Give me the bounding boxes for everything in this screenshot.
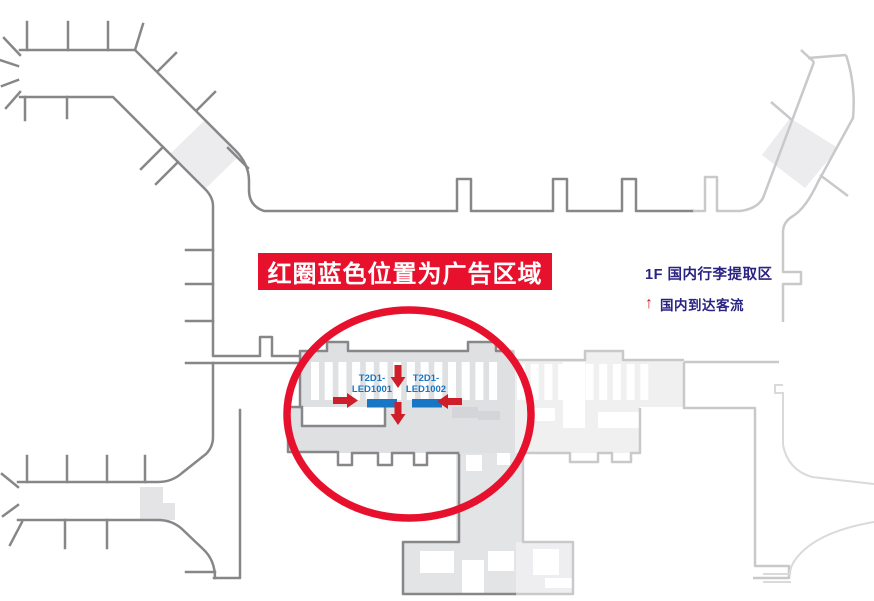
ad-spot-label-led1002: T2D1- LED1002 (404, 373, 448, 395)
wall-left-lower (18, 363, 213, 482)
shaded-band-topright (762, 118, 838, 188)
ad-spot-label-led1001: T2D1- LED1001 (350, 373, 394, 395)
shaded-band-topleft (171, 119, 241, 188)
concourse-topright-tip (801, 50, 846, 62)
walls-dark (0, 22, 693, 594)
gate-ticks-left-wall (186, 250, 213, 321)
legend-flow-row: ↑ 国内到达客流 (645, 294, 744, 314)
concourse-bottomleft-lower (18, 520, 215, 578)
walls-faint (763, 385, 874, 582)
gate-ticks-west-end (0, 38, 20, 108)
concourse-topright-outer (783, 55, 854, 322)
ad-marker-led1001[interactable] (367, 399, 397, 408)
up-arrow-icon: ↑ (645, 296, 653, 312)
room-notch-outline (302, 407, 385, 426)
ad-spot-label-line2: LED1002 (406, 384, 446, 395)
gate-ticks-bl-west (2, 474, 18, 516)
ad-spot-label-line2: LED1001 (352, 384, 392, 395)
ad-spot-label-line1: T2D1- (359, 373, 385, 384)
ad-spot-label-line1: T2D1- (413, 373, 439, 384)
terminal-floorplan: 红圈蓝色位置为广告区域 1F 国内行李提取区 ↑ 国内到达客流 T2D1- LE… (0, 0, 874, 601)
legend-floor-title: 1F 国内行李提取区 (645, 263, 772, 284)
legend-flow-label: 国内到达客流 (660, 294, 744, 314)
gate-ticks-top (27, 22, 143, 50)
gate-ticks-bl-top (27, 456, 145, 482)
wall-center-vertical (214, 410, 240, 578)
concourse-topleft-inner (20, 97, 300, 356)
ad-marker-led1002[interactable] (412, 399, 442, 408)
gate-ticks-bottom (25, 97, 67, 120)
shaded-block-bottomleft (140, 487, 175, 520)
annotation-banner: 红圈蓝色位置为广告区域 (258, 253, 552, 290)
right-region-outline (684, 362, 789, 578)
gate-ticks-bl-bottom (10, 520, 107, 548)
curb-curve-upper (775, 385, 874, 484)
concourse-topleft-outer (20, 50, 693, 211)
